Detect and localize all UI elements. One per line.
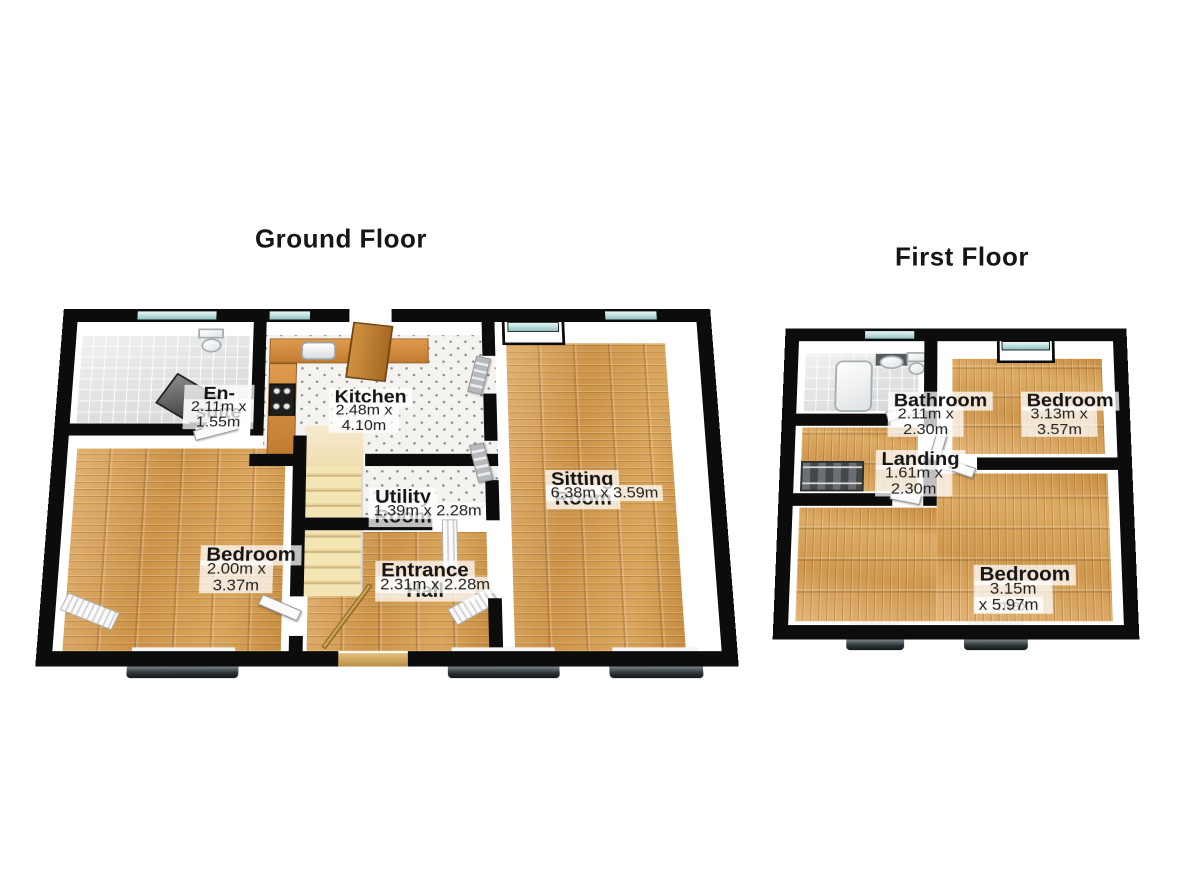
wall [485, 480, 499, 520]
stair-rail [802, 482, 862, 484]
toilet-icon [908, 362, 925, 375]
room-label-bedroom: Bedroom 2.00m x 3.37m [127, 545, 273, 560]
window-sill [448, 667, 560, 679]
floorplan-canvas: Ground Floor [0, 0, 1200, 873]
toilet-icon [198, 329, 224, 339]
window-glass [136, 311, 217, 321]
window-glass [864, 330, 915, 339]
first-floor-title: First Floor [895, 242, 1029, 273]
window-sill [132, 647, 235, 651]
wall [69, 423, 196, 435]
room-label-bathroom: Bathroom 2.11m x 2.30m [813, 392, 964, 406]
window-sill [609, 667, 704, 679]
room-label-entrance-hall: Entrance Hall 2.31m x 2.28m [322, 561, 429, 576]
ground-floor-plan: En-suite 2.11m x 1.55m Kitchen 2.48m x 4… [34, 309, 740, 682]
wall [796, 414, 891, 426]
window-glass [269, 311, 311, 321]
wall [488, 598, 504, 666]
front-door-threshold [338, 653, 408, 666]
wall [288, 636, 303, 667]
wall [482, 322, 496, 356]
wall [977, 457, 1118, 469]
window-glass [604, 311, 658, 321]
stair-rail [803, 466, 862, 468]
window-glass [507, 322, 559, 332]
door [345, 322, 393, 383]
room-label-utility-room: Utility Room 1.39m x 2.28m [328, 488, 409, 503]
window-sill [968, 621, 1024, 625]
room-label-ensuite: En-suite 2.11m x 1.55m [114, 385, 255, 399]
wall [785, 329, 1127, 342]
kitchen-sink-icon [301, 342, 336, 360]
window-sill [964, 639, 1028, 650]
window-sill [612, 647, 698, 651]
window-sill [851, 621, 901, 625]
room-label-sitting-room: Sitting Room 6.38m x 3.59m [499, 470, 591, 485]
window-sill [451, 647, 554, 651]
room-label-bedroom-first: Bedroom 3.13m x 3.57m [946, 392, 1097, 406]
first-floor-plan: Bathroom 2.11m x 2.30m Bedroom 3.13m x 3… [772, 329, 1140, 654]
room-label-bedroom-main: Bedroom 3.15m max x 5.97m [895, 565, 1053, 597]
doorway [349, 309, 391, 322]
wall [773, 625, 1140, 639]
ground-floor-title: Ground Floor [255, 224, 427, 255]
room-label-kitchen: Kitchen 2.48m x 4.10m [259, 388, 399, 402]
window-glass [1002, 341, 1051, 350]
window-sill [126, 667, 238, 679]
wall [408, 651, 739, 666]
wall [1113, 329, 1140, 640]
window-sill [846, 639, 904, 650]
wall [483, 394, 497, 441]
sink-icon [879, 355, 903, 369]
room-label-landing: Landing 1.61m x 2.30m [799, 450, 952, 465]
wall [696, 309, 739, 667]
